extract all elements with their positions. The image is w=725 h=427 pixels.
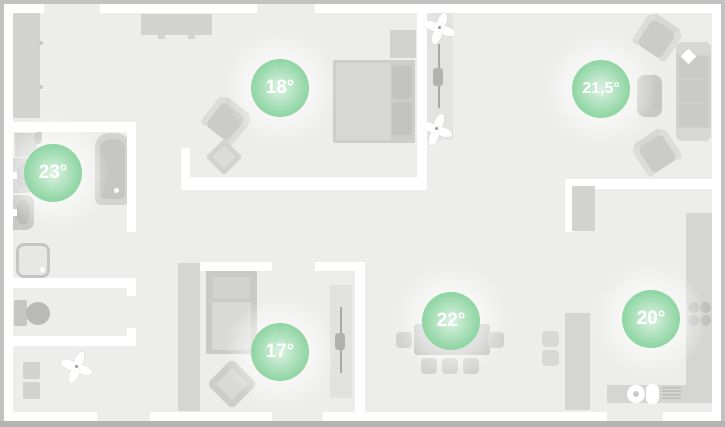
sofa: [676, 42, 711, 141]
wall-bottom-3: [323, 412, 607, 421]
bathtub-drain: [114, 188, 119, 193]
wall-bottom-1: [4, 412, 97, 421]
wardrobe-bedroom: [13, 13, 40, 118]
wall-kidsroom-right: [355, 262, 365, 412]
side-table-top: [213, 146, 236, 169]
floorplan: 18° 21,5° 23° 17° 22° 20°: [0, 0, 725, 427]
temperature-value: 22°: [437, 310, 466, 332]
radiator-valve-2: [39, 85, 43, 89]
shower-drain: [40, 267, 45, 272]
frame-right: [721, 0, 725, 427]
temperature-value: 20°: [637, 308, 666, 330]
pillow-2: [392, 102, 412, 135]
temperature-badge-kids-room[interactable]: 17°: [251, 323, 309, 381]
stool-2: [542, 350, 559, 366]
wall-wc-top: [4, 278, 136, 288]
wall-wc-jamb-bottom: [127, 328, 136, 336]
shower: [16, 243, 50, 278]
sideboard-foot-2: [188, 35, 195, 39]
stool-1: [542, 331, 559, 347]
kitchen-drainboard-grate: [662, 387, 681, 400]
pillow: [213, 277, 250, 299]
nightstand-bedroom: [390, 30, 416, 58]
kitchen-counter-left: [565, 313, 590, 410]
radiator-valve-1: [39, 41, 43, 45]
temperature-value: 23°: [39, 162, 68, 184]
sofa-cushion-2: [679, 80, 708, 103]
sideboard-bedroom: [141, 14, 212, 35]
side-table-bedroom: [206, 139, 243, 176]
wardrobe-kids: [178, 263, 200, 411]
double-bed: [333, 60, 415, 143]
wall-bottom-2: [150, 412, 272, 421]
temperature-badge-dining-area[interactable]: 22°: [422, 292, 480, 350]
wall-top-2: [100, 4, 257, 13]
pillow-1: [392, 66, 412, 99]
kitchen-counter-bottom: [607, 385, 712, 403]
wall-left: [4, 4, 13, 421]
frame-top: [0, 0, 725, 4]
toilet-bowl: [26, 302, 50, 325]
temperature-value: 17°: [266, 341, 295, 363]
wall-wc-bottom: [4, 336, 136, 346]
plant-icon-hall-bottom: [421, 114, 451, 144]
sofa-armrest-bottom: [676, 128, 711, 141]
mattress: [336, 63, 390, 140]
plant-icon-entry: [61, 352, 91, 382]
sideboard-foot-1: [158, 35, 165, 39]
shoe-cabinet-1: [23, 362, 40, 379]
temperature-value: 21,5°: [582, 80, 620, 98]
wall-right: [712, 4, 721, 421]
sliding-door-handle-kids: [335, 333, 345, 350]
temperature-badge-bathroom[interactable]: 23°: [24, 144, 82, 202]
wall-top-3: [315, 4, 721, 13]
wall-bedroom-door-jamb: [181, 148, 190, 177]
sliding-door-handle-hall: [433, 68, 443, 86]
kitchen-sink-second: [646, 384, 659, 404]
wall-bedroom-bottom: [181, 177, 427, 190]
temperature-badge-bedroom[interactable]: 18°: [251, 59, 309, 117]
frame-left: [0, 0, 4, 427]
shoe-cabinet-2: [23, 382, 40, 399]
plant-icon-hall-top: [424, 13, 454, 43]
wall-bathroom-right: [127, 122, 136, 232]
frame-bottom: [0, 421, 725, 427]
sofa-cushion-3: [679, 104, 708, 127]
wall-kidsroom-top-left: [200, 262, 272, 271]
temperature-badge-kitchen[interactable]: 20°: [622, 290, 680, 348]
kitchen-sink-drain: [633, 391, 639, 397]
temperature-value: 18°: [266, 77, 295, 99]
cabinet-kitchen: [572, 186, 595, 231]
wall-wc-jamb-top: [127, 288, 136, 296]
temperature-badge-living-room[interactable]: 21,5°: [572, 60, 630, 118]
